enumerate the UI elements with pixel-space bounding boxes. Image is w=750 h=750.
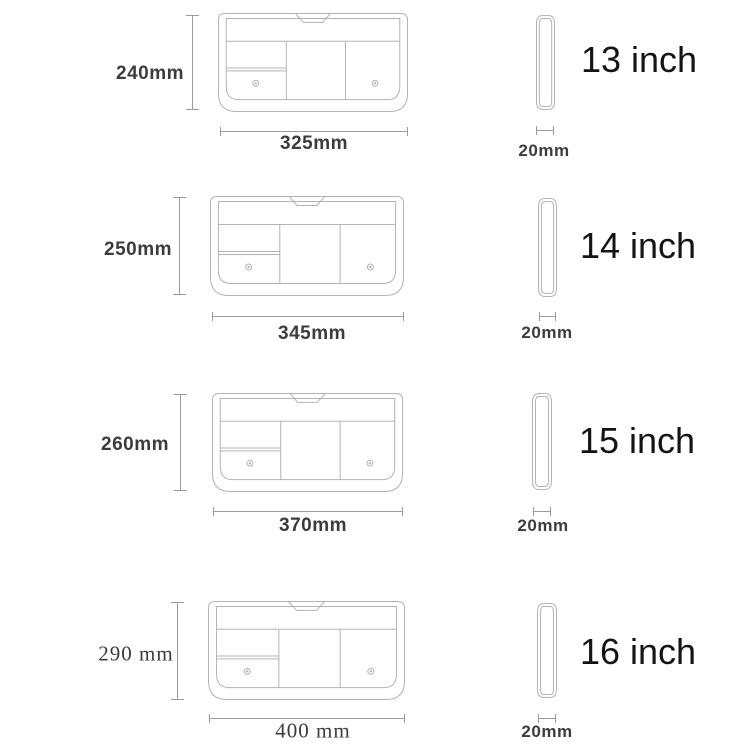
depth-dimension-label: 20mm	[521, 323, 572, 343]
size-label: 16 inch	[580, 631, 696, 673]
depth-dimension-line	[533, 507, 551, 516]
depth-dimension-label: 20mm	[521, 722, 572, 742]
dimension-tick	[186, 109, 199, 110]
depth-dimension-label: 20mm	[518, 141, 569, 161]
depth-dimension-line	[536, 126, 554, 135]
sleeve-side-view	[532, 393, 552, 490]
height-dimension-line	[174, 394, 187, 491]
dimension-line	[192, 15, 193, 110]
size-label: 13 inch	[581, 39, 697, 81]
height-dimension-line	[186, 15, 199, 110]
dimension-line	[213, 511, 403, 512]
dimension-line	[538, 718, 556, 719]
dimension-tick	[171, 699, 184, 700]
width-dimension-label: 400 mm	[275, 719, 350, 744]
height-dimension-label: 250mm	[104, 239, 172, 261]
dimension-tick	[402, 507, 403, 516]
height-dimension-label: 260mm	[101, 434, 169, 456]
sleeve-front-view	[218, 13, 408, 112]
sleeve-side-view	[536, 15, 555, 110]
height-dimension-line	[173, 197, 186, 295]
sleeve-front-view	[212, 393, 403, 492]
dimension-tick	[555, 312, 556, 321]
dimension-line	[177, 602, 178, 700]
width-dimension-label: 370mm	[279, 515, 347, 537]
width-dimension-line	[212, 312, 404, 321]
dimension-line	[220, 131, 408, 132]
dimension-line	[533, 511, 551, 512]
depth-dimension-label: 20mm	[517, 516, 568, 536]
dimension-tick	[553, 126, 554, 135]
sleeve-side-view	[537, 603, 557, 698]
sleeve-front-view	[210, 196, 404, 296]
dimension-line	[539, 316, 556, 317]
dimension-tick	[550, 507, 551, 516]
dimension-tick	[407, 127, 408, 136]
sleeve-front-view	[208, 601, 405, 700]
size-label: 14 inch	[580, 225, 696, 267]
height-dimension-label: 240mm	[116, 63, 184, 85]
depth-dimension-line	[539, 312, 556, 321]
sleeve-side-view	[538, 198, 557, 297]
dimension-tick	[173, 294, 186, 295]
dimension-line	[212, 316, 404, 317]
dimension-tick	[404, 714, 405, 723]
dimension-tick	[403, 312, 404, 321]
size-chart: 240mm 325mm 20mm 13 inch	[0, 0, 750, 750]
dimension-line	[179, 197, 180, 295]
dimension-line	[180, 394, 181, 491]
size-label: 15 inch	[579, 420, 695, 462]
dimension-line	[536, 130, 554, 131]
height-dimension-label: 290 mm	[98, 642, 173, 667]
width-dimension-label: 345mm	[278, 323, 346, 345]
dimension-tick	[174, 490, 187, 491]
width-dimension-label: 325mm	[280, 133, 348, 155]
